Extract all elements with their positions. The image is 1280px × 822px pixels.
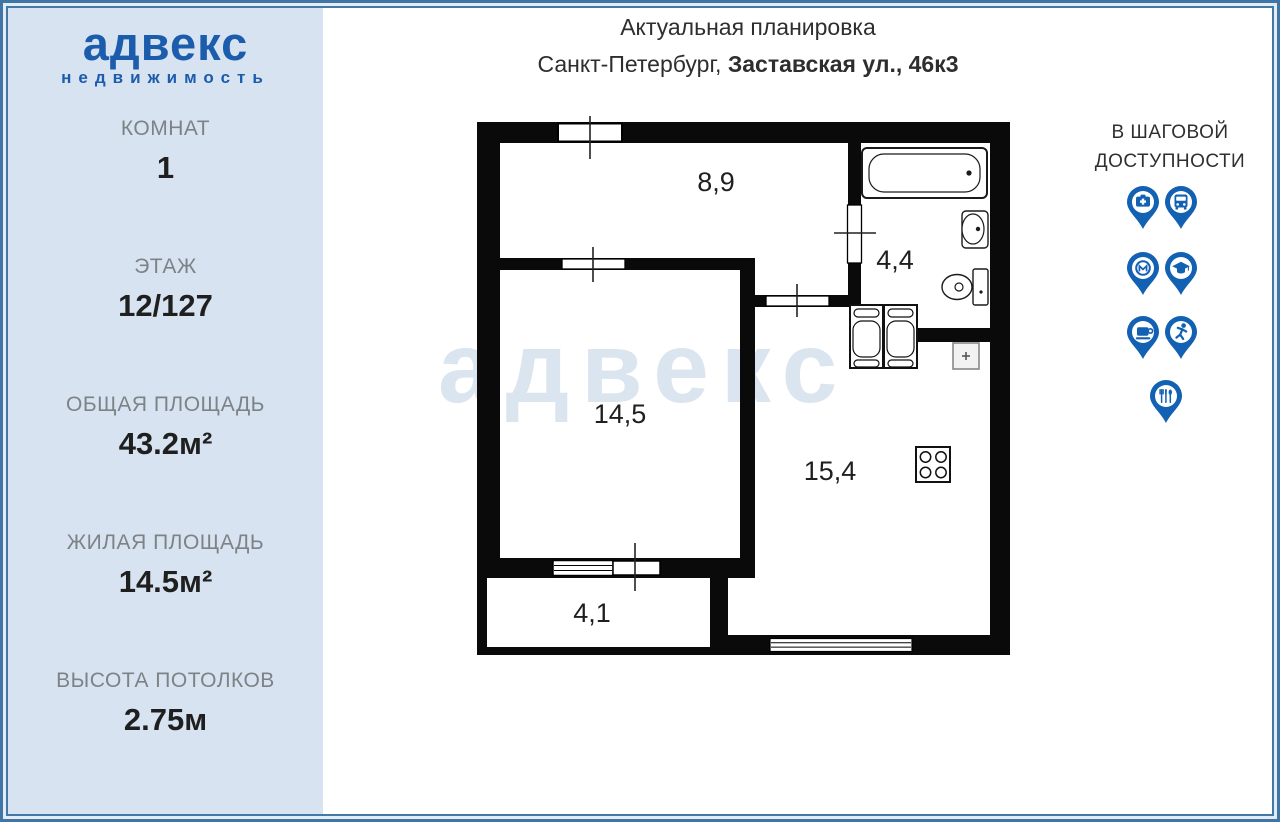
page-address: Санкт-Петербург, Заставская ул., 46к3	[323, 51, 1173, 78]
address-street: Заставская ул., 46к3	[728, 51, 959, 77]
bathtub-icon	[862, 148, 987, 198]
advex-logo: адвекс недвижимость	[8, 8, 323, 88]
spec-ceiling-height-label: ВЫСОТА ПОТОЛКОВ	[8, 669, 323, 693]
pin-sports-icon	[1163, 314, 1199, 360]
spec-rooms-label: КОМНАТ	[8, 117, 323, 141]
spec-floor-label: ЭТАЖ	[8, 255, 323, 279]
page-title: Актуальная планировка	[323, 14, 1173, 41]
window-kitchen	[770, 639, 912, 652]
stove-icon	[916, 447, 950, 482]
spec-living-area-value: 14.5м²	[8, 564, 323, 600]
nearby-heading-line1: В ШАГОВОЙ	[1085, 118, 1255, 147]
washing-machines-icon	[850, 305, 917, 368]
address-city: Санкт-Петербург,	[537, 51, 727, 77]
spec-ceiling-height-value: 2.75м	[8, 702, 323, 738]
logo-subtitle: недвижимость	[8, 68, 323, 88]
pin-restaurant-icon	[1148, 378, 1184, 424]
room-area-label-balcony: 4,1	[573, 598, 611, 628]
floor-plan: 8,9 4,4 14,5 15,4 4,1	[470, 115, 1015, 660]
spec-rooms: КОМНАТ 1	[8, 117, 323, 186]
room-area-label-living: 14,5	[594, 399, 647, 429]
wash-basin-icon	[962, 211, 988, 248]
door-balcony	[613, 561, 660, 575]
nearby-heading-line2: ДОСТУПНОСТИ	[1085, 147, 1255, 176]
room-area-label-kitchen: 15,4	[804, 456, 857, 486]
pin-cafe-icon	[1125, 314, 1161, 360]
pin-pharmacy-icon	[1125, 184, 1161, 230]
spec-living-area-label: ЖИЛАЯ ПЛОЩАДЬ	[8, 531, 323, 555]
toilet-icon	[942, 269, 988, 305]
spec-floor-value: 12/127	[8, 288, 323, 324]
spec-living-area: ЖИЛАЯ ПЛОЩАДЬ 14.5м²	[8, 531, 323, 600]
window-balcony	[553, 561, 613, 576]
spec-total-area-label: ОБЩАЯ ПЛОЩАДЬ	[8, 393, 323, 417]
kitchen-sink-icon	[953, 343, 979, 369]
sidebar: адвекс недвижимость КОМНАТ 1 ЭТАЖ 12/127…	[8, 8, 323, 814]
door-bathroom	[848, 205, 862, 263]
spec-ceiling-height: ВЫСОТА ПОТОЛКОВ 2.75м	[8, 669, 323, 738]
room-area-label-hallway: 8,9	[697, 167, 735, 197]
pin-education-icon	[1163, 250, 1199, 296]
spec-floor: ЭТАЖ 12/127	[8, 255, 323, 324]
pin-metro-icon	[1125, 250, 1161, 296]
pin-bus-icon	[1163, 184, 1199, 230]
header: Актуальная планировка Санкт-Петербург, З…	[323, 0, 1173, 78]
room-area-label-bathroom: 4,4	[876, 245, 914, 275]
spec-total-area-value: 43.2м²	[8, 426, 323, 462]
logo-title: адвекс	[8, 21, 323, 67]
nearby-heading: В ШАГОВОЙ ДОСТУПНОСТИ	[1085, 118, 1255, 176]
spec-total-area: ОБЩАЯ ПЛОЩАДЬ 43.2м²	[8, 393, 323, 462]
spec-rooms-value: 1	[8, 150, 323, 186]
